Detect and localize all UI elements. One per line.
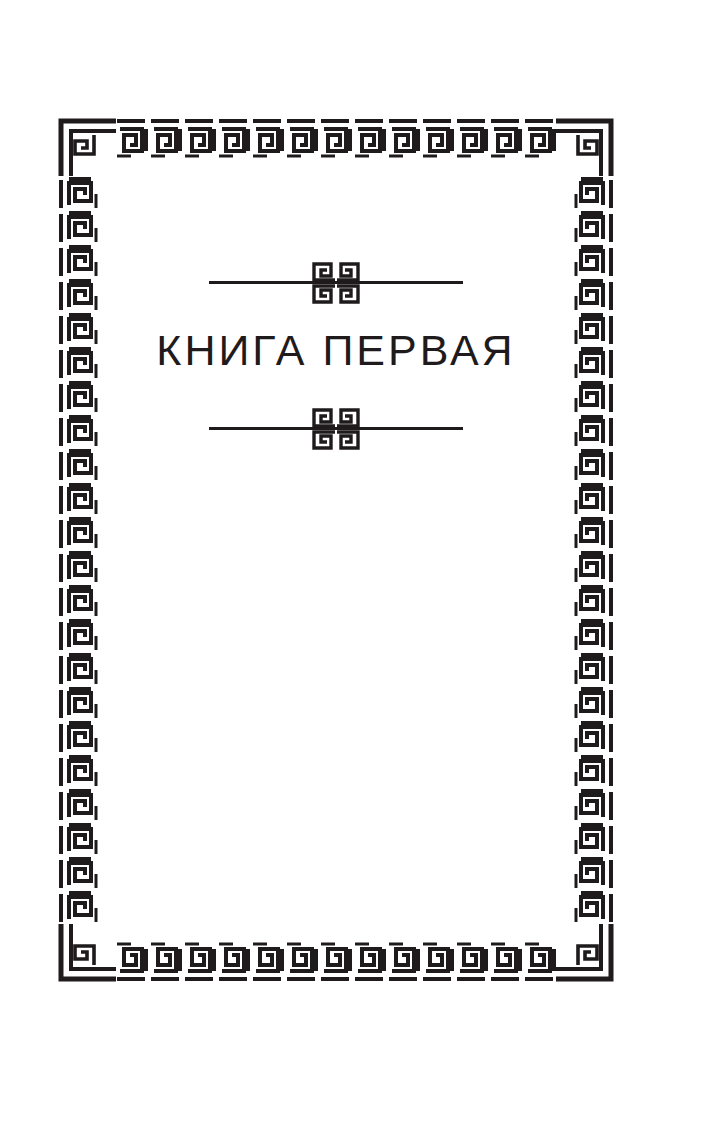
quad-greek-spiral-icon	[310, 407, 362, 451]
quad-greek-spiral-icon	[310, 261, 362, 305]
page-title: КНИГА ПЕРВАЯ	[58, 327, 614, 374]
border-corners	[61, 121, 611, 979]
bottom-divider	[209, 406, 463, 452]
border-bottom	[117, 944, 554, 979]
border-top	[117, 121, 554, 156]
top-divider	[209, 260, 463, 306]
book-page: КНИГА ПЕРВАЯ	[0, 0, 709, 1122]
border-right	[576, 179, 611, 922]
greek-key-meander-border	[58, 118, 614, 982]
border-left	[61, 179, 96, 922]
greek-key-border-frame	[58, 118, 614, 982]
